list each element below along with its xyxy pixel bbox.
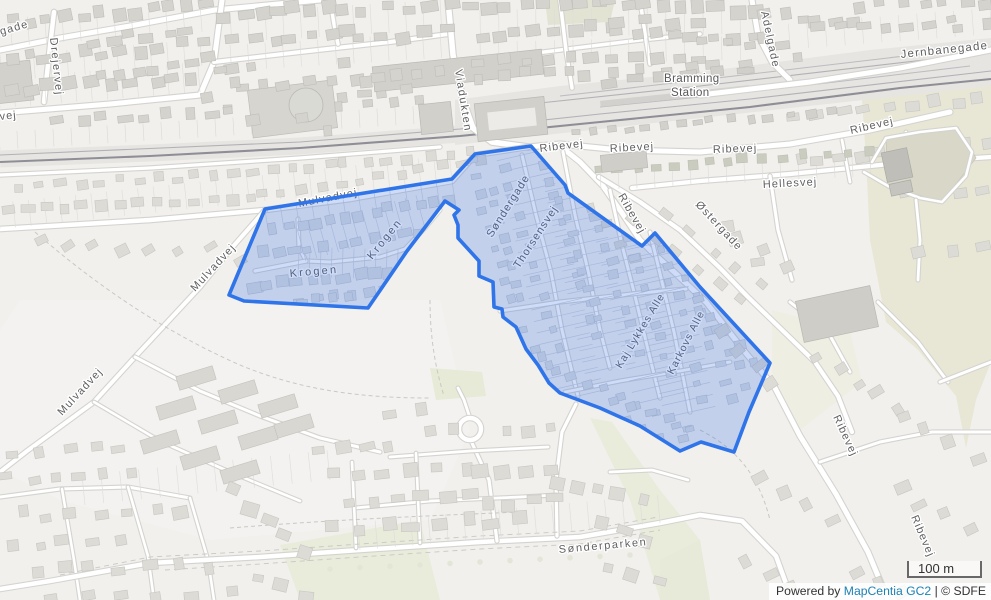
svg-text:Ribevej: Ribevej [610,141,655,155]
svg-text:vej: vej [0,109,17,123]
svg-text:Bramming: Bramming [664,73,720,85]
svg-text:Ribevej: Ribevej [713,142,758,156]
svg-text:Station: Station [671,87,710,99]
